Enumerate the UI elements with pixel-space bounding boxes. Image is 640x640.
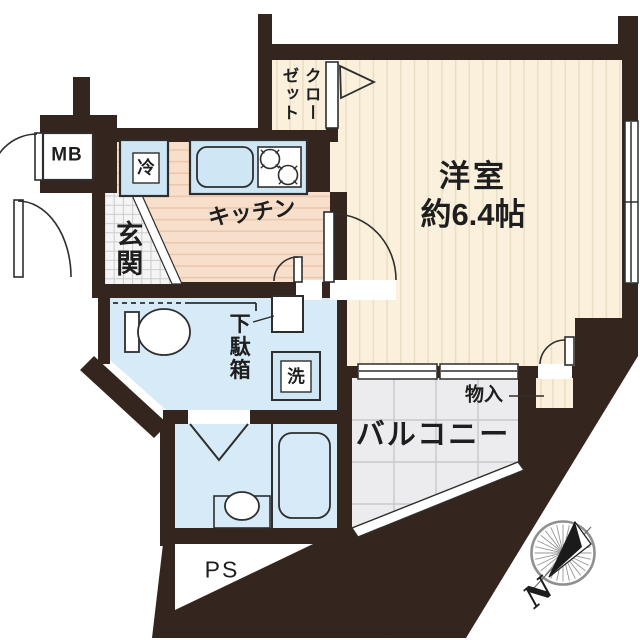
- shoe-cabinet-label: 下駄箱: [224, 313, 252, 382]
- balcony-label: バルコニー: [356, 420, 510, 452]
- meter-box-door: [0, 133, 45, 180]
- storage-label: 物入: [465, 386, 503, 407]
- entrance-label: 玄関: [109, 220, 145, 278]
- kitchen-counter: [190, 140, 307, 194]
- washing-machine-label: 洗: [287, 367, 305, 386]
- toilet: [125, 309, 190, 355]
- meter-box-label: MB: [51, 146, 83, 167]
- side-window: [625, 121, 638, 283]
- main-room-area-label: 約6.4帖: [420, 198, 525, 232]
- balcony-window-left: [358, 364, 437, 379]
- balcony-window-right: [440, 364, 518, 379]
- stove: [258, 147, 301, 187]
- entrance-door: [14, 200, 71, 277]
- closet-label: クローゼット: [278, 62, 323, 128]
- pipe-space-label: PS: [205, 557, 240, 582]
- refrigerator-label: 冷: [137, 158, 155, 177]
- floor-plan: 洋室 約6.4帖 キッチン クローゼット 玄関 下駄箱 MB 冷 洗 バルコニー…: [0, 0, 640, 640]
- main-room-label: 洋室: [439, 160, 507, 194]
